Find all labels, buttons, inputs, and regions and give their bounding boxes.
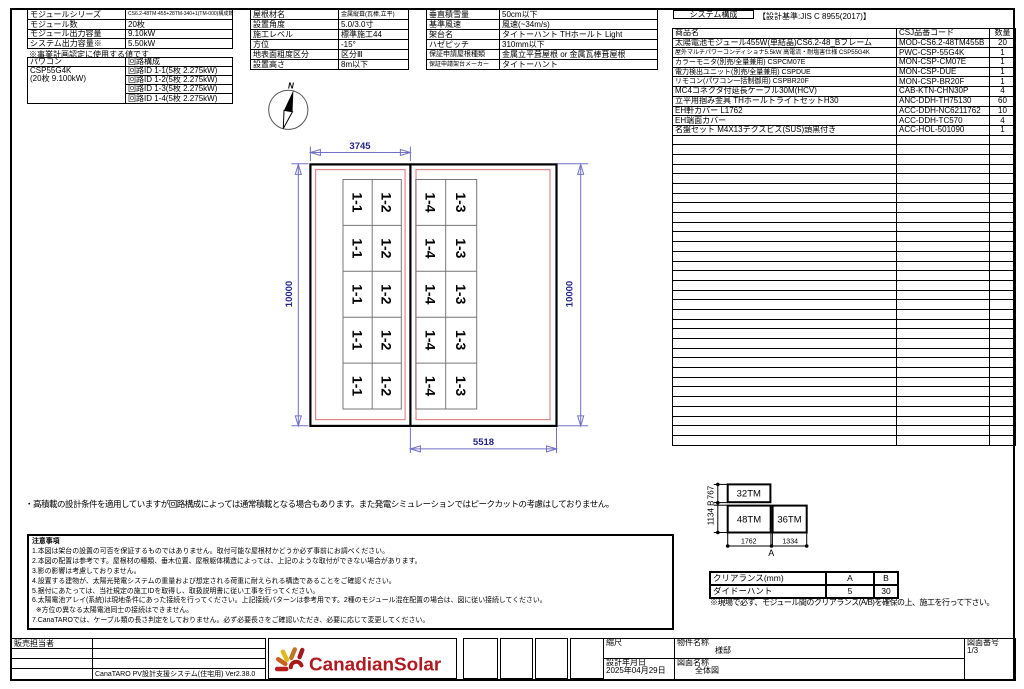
svg-text:B: B [707,501,716,506]
svg-text:48TM: 48TM [737,515,761,526]
svg-text:1-2: 1-2 [379,284,395,304]
svg-text:10000: 10000 [284,281,295,307]
svg-text:1-4: 1-4 [423,192,439,212]
svg-text:1-3: 1-3 [453,192,469,212]
svg-text:1-3: 1-3 [453,330,469,350]
svg-text:1-4: 1-4 [423,376,439,396]
svg-text:1762: 1762 [741,539,757,546]
svg-text:1-2: 1-2 [379,376,395,396]
svg-text:1-2: 1-2 [379,192,395,212]
svg-text:1134: 1134 [707,508,716,526]
svg-text:1-1: 1-1 [350,376,366,396]
svg-text:767: 767 [707,485,716,499]
svg-text:N: N [288,82,294,91]
svg-text:1-1: 1-1 [350,192,366,212]
svg-text:1-1: 1-1 [350,238,366,258]
svg-text:1-3: 1-3 [453,376,469,396]
svg-text:1-2: 1-2 [379,330,395,350]
svg-text:32TM: 32TM [737,489,761,500]
svg-text:1-3: 1-3 [453,284,469,304]
svg-text:5518: 5518 [473,437,494,448]
svg-text:1-1: 1-1 [350,284,366,304]
svg-text:1-1: 1-1 [350,330,366,350]
svg-text:36TM: 36TM [777,515,801,526]
svg-text:CanadianSolar: CanadianSolar [309,655,442,676]
svg-text:1-4: 1-4 [423,284,439,304]
svg-text:A: A [768,548,774,558]
svg-text:1-3: 1-3 [453,238,469,258]
svg-text:1-4: 1-4 [423,330,439,350]
svg-text:10000: 10000 [565,281,576,307]
svg-text:1-4: 1-4 [423,238,439,258]
svg-text:1-2: 1-2 [379,238,395,258]
svg-text:3745: 3745 [349,141,371,152]
svg-text:1334: 1334 [782,539,798,546]
